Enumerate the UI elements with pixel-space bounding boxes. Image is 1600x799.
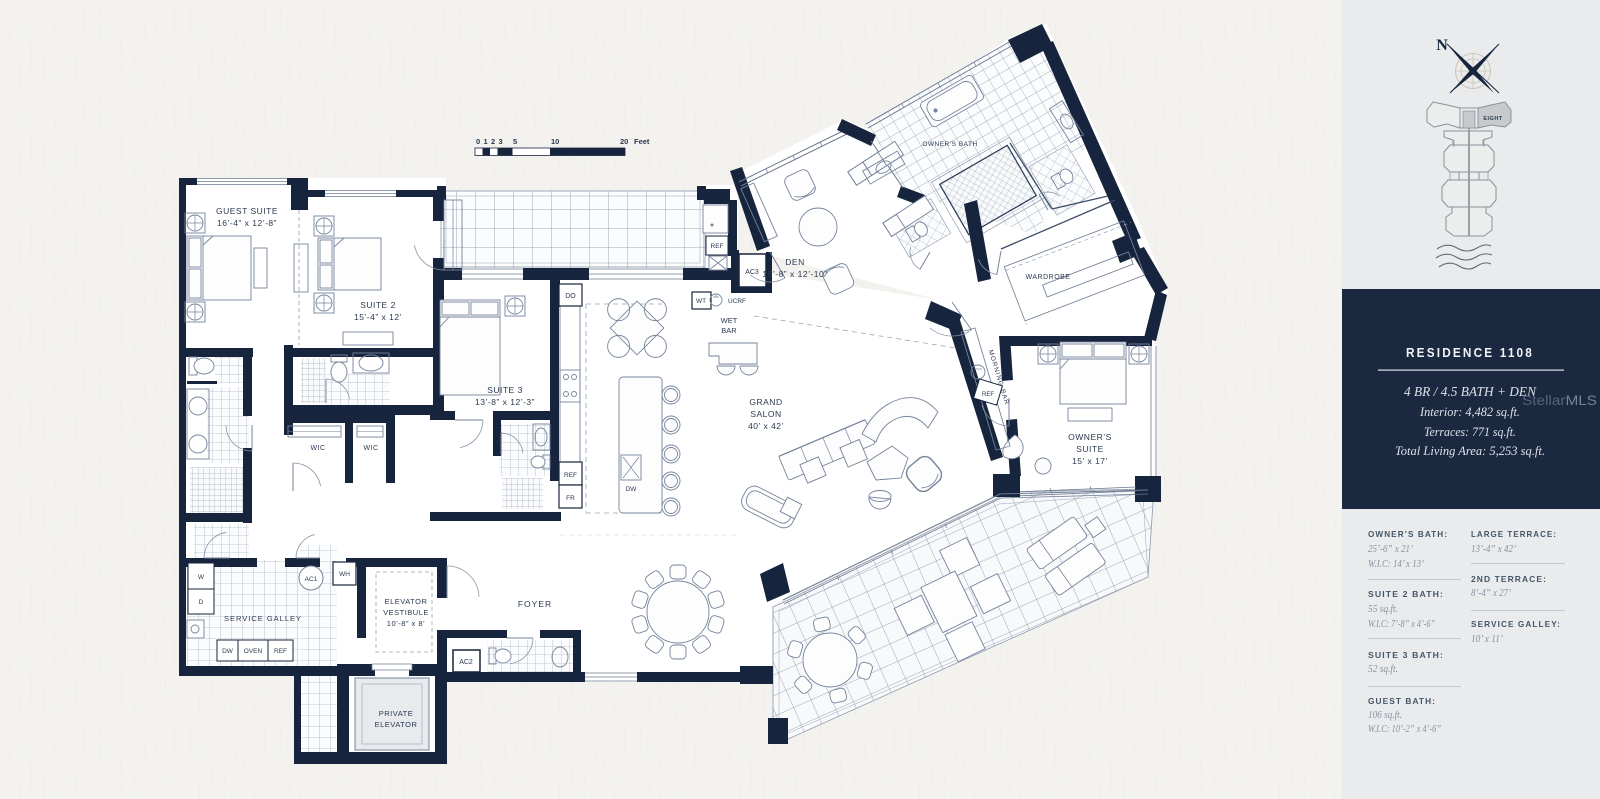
svg-text:AC1: AC1: [305, 576, 318, 583]
svg-text:2: 2: [491, 137, 495, 146]
svg-text:AC3: AC3: [745, 269, 759, 276]
svg-text:52 sq.ft.: 52 sq.ft.: [1368, 663, 1398, 675]
svg-text:StellarMLS: StellarMLS: [1522, 393, 1597, 408]
svg-text:10: 10: [551, 137, 559, 146]
svg-text:UCRF: UCRF: [728, 298, 746, 305]
svg-text:VESTIBULE: VESTIBULE: [383, 608, 429, 617]
svg-text:BAR: BAR: [721, 326, 737, 335]
svg-text:SUITE 3 BATH:: SUITE 3 BATH:: [1368, 650, 1444, 660]
svg-text:LARGE TERRACE:: LARGE TERRACE:: [1471, 529, 1557, 539]
svg-text:Total Living Area: 5,253 sq.ft: Total Living Area: 5,253 sq.ft.: [1395, 443, 1545, 458]
svg-text:W.I.C: 10’-2” x 4’-6”: W.I.C: 10’-2” x 4’-6”: [1368, 723, 1441, 735]
svg-text:FR: FR: [566, 495, 575, 502]
svg-text:SUITE 2 BATH:: SUITE 2 BATH:: [1368, 589, 1444, 599]
svg-text:WIC: WIC: [310, 445, 325, 452]
svg-text:D: D: [199, 599, 204, 606]
svg-text:10’-8” x 8’: 10’-8” x 8’: [387, 619, 425, 628]
svg-text:1: 1: [484, 137, 488, 146]
svg-text:8’-4” x 27’: 8’-4” x 27’: [1471, 587, 1511, 599]
svg-text:10’ x 11’: 10’ x 11’: [1471, 633, 1503, 645]
svg-text:DO: DO: [565, 293, 576, 300]
svg-text:GUEST SUITE: GUEST SUITE: [216, 206, 278, 216]
svg-text:OWNER’S: OWNER’S: [1068, 432, 1112, 442]
svg-text:SERVICE GALLEY: SERVICE GALLEY: [224, 614, 302, 623]
svg-text:WARDROBE: WARDROBE: [1026, 274, 1071, 281]
svg-text:15’-4” x 12’: 15’-4” x 12’: [354, 312, 402, 322]
svg-text:106 sq.ft.: 106 sq.ft.: [1368, 709, 1402, 721]
svg-text:OWNER’S BATH: OWNER’S BATH: [922, 141, 977, 148]
svg-text:SERVICE GALLEY:: SERVICE GALLEY:: [1471, 619, 1561, 629]
svg-text:RESIDENCE 1108: RESIDENCE 1108: [1406, 345, 1534, 360]
svg-text:PRIVATE: PRIVATE: [379, 709, 413, 718]
svg-text:ELEVATOR: ELEVATOR: [375, 720, 418, 729]
svg-text:DW: DW: [222, 648, 234, 655]
svg-text:15’ x 17’: 15’ x 17’: [1072, 456, 1108, 466]
svg-text:3: 3: [499, 137, 503, 146]
svg-text:GUEST BATH:: GUEST BATH:: [1368, 696, 1436, 706]
svg-text:13’-4” x 42’: 13’-4” x 42’: [1471, 543, 1516, 555]
svg-text:20: 20: [620, 137, 628, 146]
svg-text:AC2: AC2: [459, 659, 473, 666]
svg-text:REF: REF: [982, 392, 994, 398]
svg-text:W.I.C: 7’-8” x 4’-6”: W.I.C: 7’-8” x 4’-6”: [1368, 618, 1435, 630]
svg-text:WH: WH: [339, 571, 350, 578]
svg-text:2ND TERRACE:: 2ND TERRACE:: [1471, 574, 1547, 584]
svg-text:EIGHT: EIGHT: [1483, 116, 1502, 122]
svg-text:REF: REF: [711, 243, 724, 250]
svg-text:WET: WET: [721, 316, 738, 325]
svg-text:REF: REF: [564, 472, 577, 479]
svg-text:5: 5: [513, 137, 517, 146]
svg-text:DW: DW: [626, 486, 638, 493]
svg-text:OVEN: OVEN: [244, 648, 263, 655]
svg-text:SALON: SALON: [750, 409, 781, 419]
svg-text:SUITE 2: SUITE 2: [360, 300, 396, 310]
svg-text:N: N: [1436, 37, 1448, 54]
svg-text:Interior: 4,482 sq.ft.: Interior: 4,482 sq.ft.: [1419, 404, 1520, 419]
svg-text:WT: WT: [696, 298, 706, 305]
svg-text:W.I.C: 14’ x 13’: W.I.C: 14’ x 13’: [1368, 558, 1424, 570]
svg-text:ELEVATOR: ELEVATOR: [385, 597, 428, 606]
svg-text:FOYER: FOYER: [518, 599, 552, 609]
svg-text:0: 0: [476, 137, 480, 146]
svg-text:OWNER’S BATH:: OWNER’S BATH:: [1368, 529, 1448, 539]
svg-text:55 sq.ft.: 55 sq.ft.: [1368, 603, 1398, 615]
svg-text:40’ x 42’: 40’ x 42’: [748, 421, 784, 431]
svg-text:WIC: WIC: [363, 445, 378, 452]
svg-text:16’-4” x 12’-8”: 16’-4” x 12’-8”: [217, 218, 277, 228]
svg-text:Terraces: 771 sq.ft.: Terraces: 771 sq.ft.: [1424, 424, 1516, 439]
svg-text:Feet: Feet: [634, 137, 650, 146]
svg-text:REF: REF: [274, 648, 287, 655]
svg-text:SUITE 3: SUITE 3: [487, 385, 523, 395]
svg-text:GRAND: GRAND: [749, 397, 782, 407]
svg-text:DEN: DEN: [785, 257, 804, 267]
svg-text:25’-6” x 21’: 25’-6” x 21’: [1368, 543, 1413, 555]
svg-text:W: W: [198, 574, 205, 581]
svg-text:15’-8” x 12’-10”: 15’-8” x 12’-10”: [762, 269, 827, 279]
svg-text:4 BR / 4.5 BATH + DEN: 4 BR / 4.5 BATH + DEN: [1404, 384, 1537, 399]
svg-text:SUITE: SUITE: [1076, 444, 1104, 454]
svg-text:13’-8” x 12’-3”: 13’-8” x 12’-3”: [475, 397, 535, 407]
